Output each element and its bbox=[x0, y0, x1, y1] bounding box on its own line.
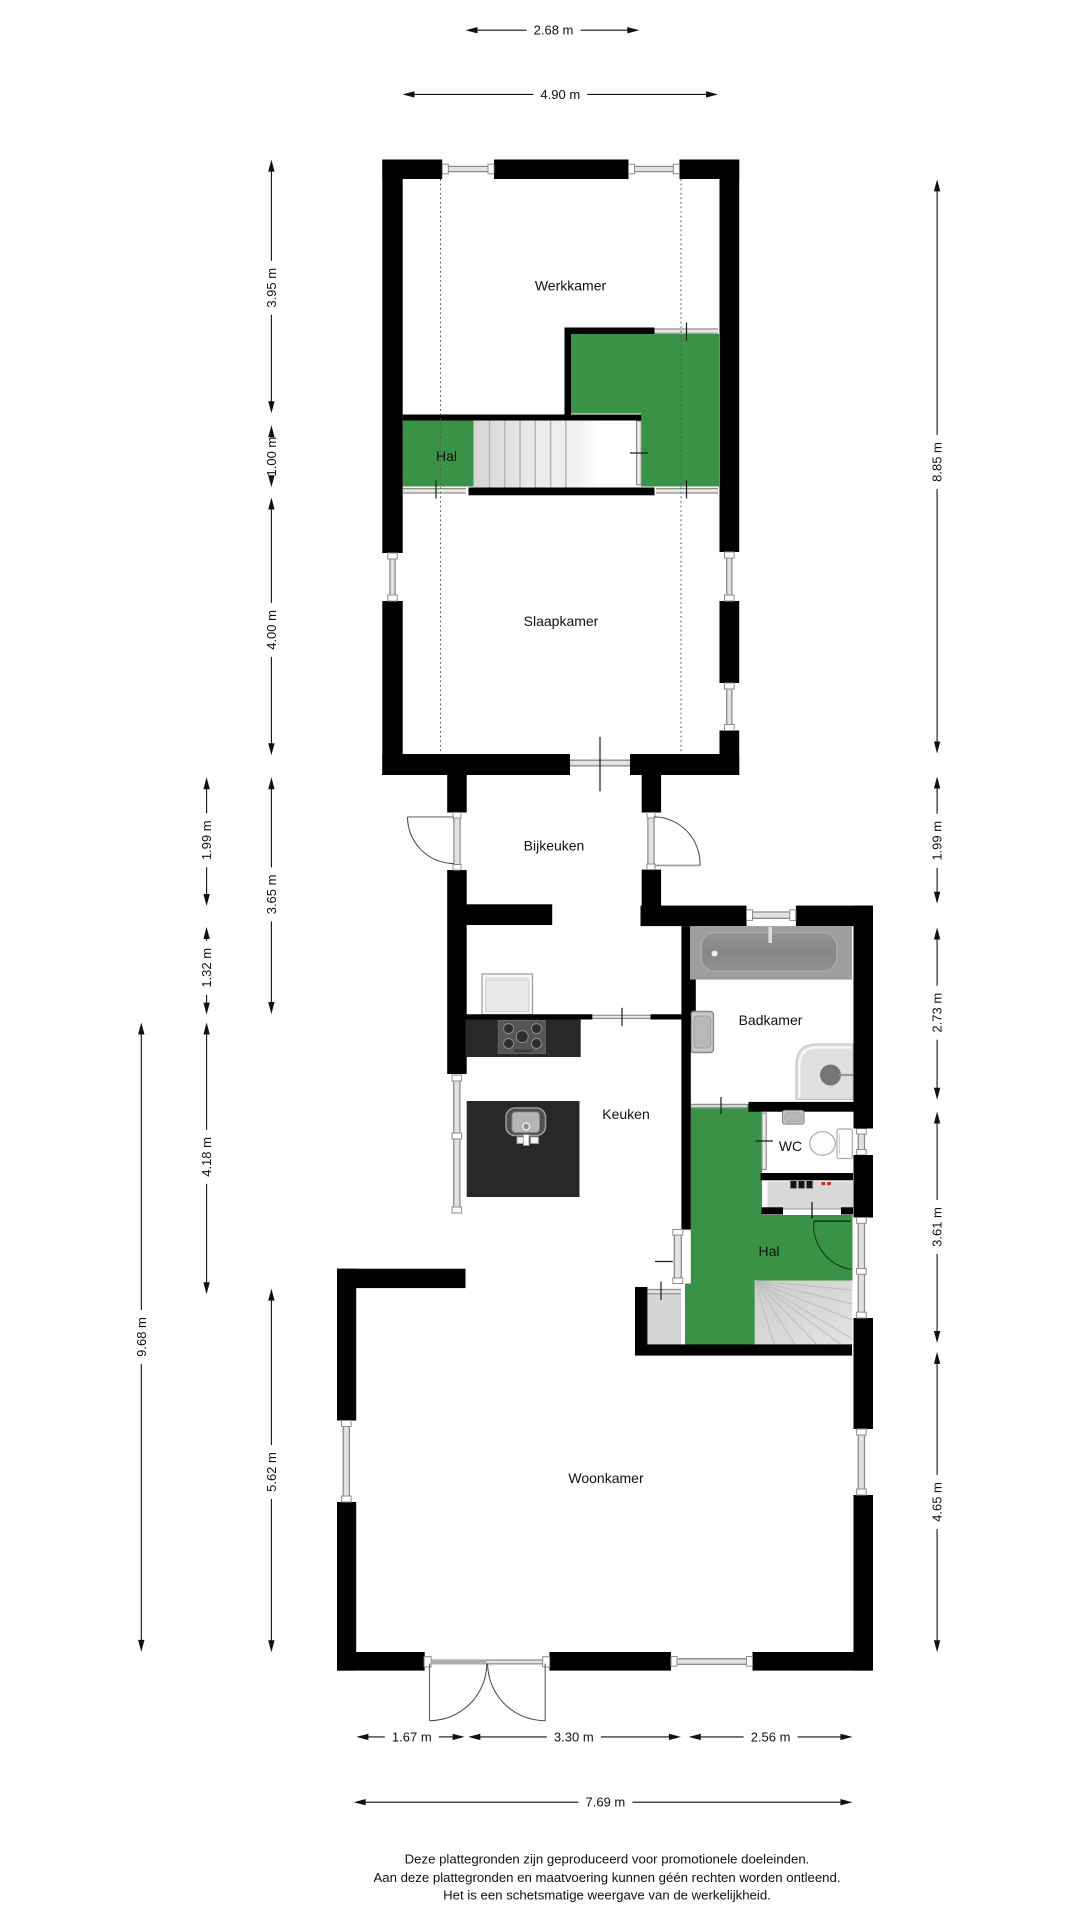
svg-text:Badkamer: Badkamer bbox=[739, 1012, 803, 1028]
svg-text:1.67 m: 1.67 m bbox=[392, 1729, 432, 1744]
svg-text:1.99 m: 1.99 m bbox=[199, 820, 214, 860]
svg-text:Het is een schetsmatige weerga: Het is een schetsmatige weergave van de … bbox=[443, 1888, 771, 1903]
svg-text:5.62 m: 5.62 m bbox=[264, 1452, 279, 1492]
svg-text:8.85 m: 8.85 m bbox=[930, 442, 945, 482]
svg-text:4.00 m: 4.00 m bbox=[264, 610, 279, 650]
svg-text:3.65 m: 3.65 m bbox=[264, 875, 279, 915]
svg-text:WC: WC bbox=[779, 1138, 802, 1154]
svg-text:Hal: Hal bbox=[436, 448, 457, 464]
svg-text:Bijkeuken: Bijkeuken bbox=[524, 838, 585, 854]
svg-text:Slaapkamer: Slaapkamer bbox=[524, 613, 599, 629]
svg-text:1.00 m: 1.00 m bbox=[264, 437, 279, 477]
svg-text:Woonkamer: Woonkamer bbox=[568, 1470, 644, 1486]
svg-text:2.56 m: 2.56 m bbox=[751, 1729, 791, 1744]
svg-text:Werkkamer: Werkkamer bbox=[535, 278, 607, 294]
svg-text:Keuken: Keuken bbox=[602, 1106, 649, 1122]
svg-text:3.30 m: 3.30 m bbox=[554, 1729, 594, 1744]
svg-text:4.18 m: 4.18 m bbox=[199, 1137, 214, 1177]
svg-text:2.73 m: 2.73 m bbox=[930, 993, 945, 1033]
svg-text:1.99 m: 1.99 m bbox=[930, 821, 945, 861]
svg-text:3.61 m: 3.61 m bbox=[930, 1207, 945, 1247]
svg-text:7.69 m: 7.69 m bbox=[586, 1795, 626, 1810]
svg-text:9.68 m: 9.68 m bbox=[134, 1317, 149, 1357]
svg-text:Aan deze plattegronden en maat: Aan deze plattegronden en maatvoering ku… bbox=[373, 1870, 840, 1885]
svg-text:Deze plattegronden zijn geprod: Deze plattegronden zijn geproduceerd voo… bbox=[405, 1852, 810, 1867]
svg-text:1.32 m: 1.32 m bbox=[199, 948, 214, 988]
svg-text:4.65 m: 4.65 m bbox=[930, 1482, 945, 1522]
svg-text:3.95 m: 3.95 m bbox=[264, 268, 279, 308]
svg-text:2.68 m: 2.68 m bbox=[534, 23, 574, 38]
svg-text:4.90 m: 4.90 m bbox=[540, 87, 580, 102]
svg-text:Hal: Hal bbox=[758, 1243, 779, 1259]
